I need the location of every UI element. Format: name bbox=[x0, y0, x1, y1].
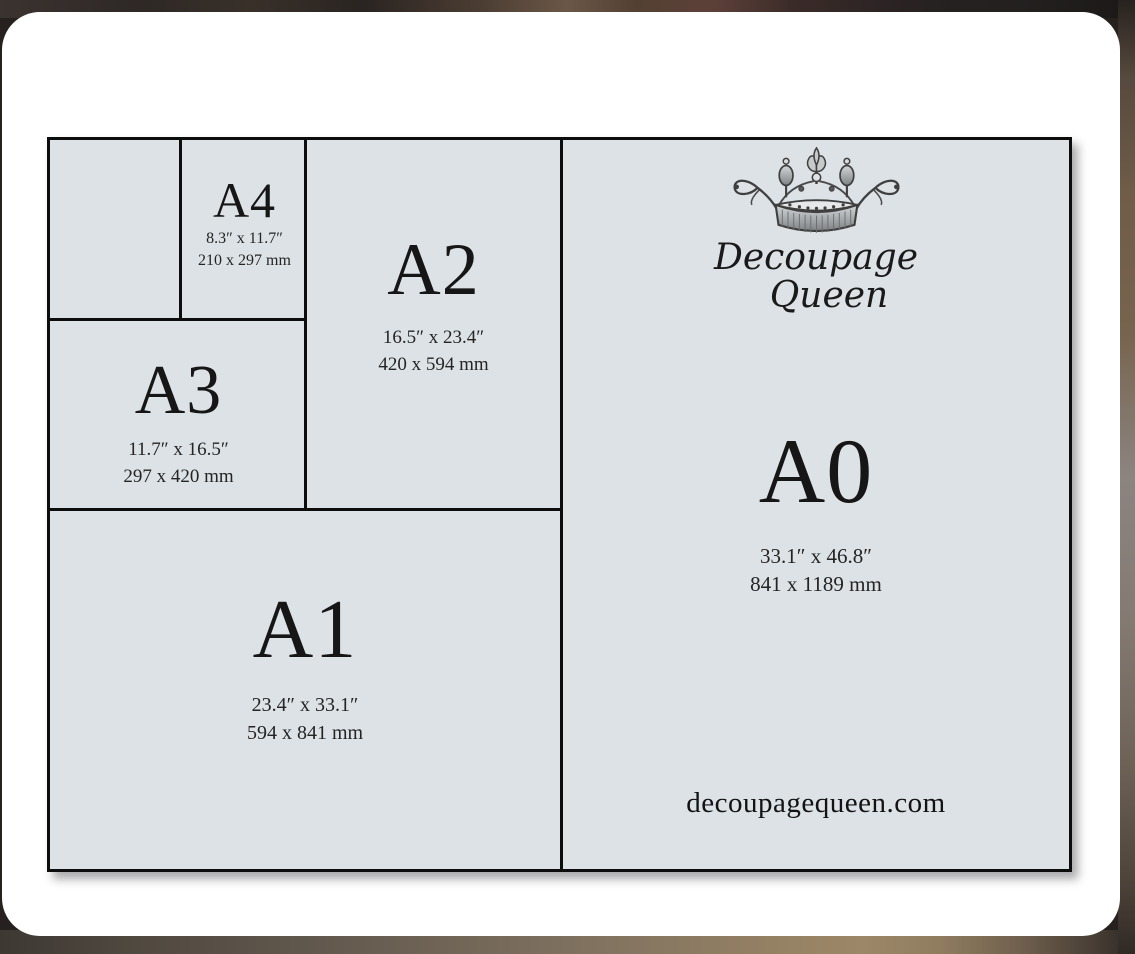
a2-label: A2 bbox=[307, 233, 560, 307]
a1-label: A1 bbox=[50, 588, 560, 672]
a0-dimensions: 33.1″ x 46.8″ 841 x 1189 mm bbox=[563, 542, 1069, 599]
divider-a4-row-bottom bbox=[50, 318, 304, 321]
a3-mm: 297 x 420 mm bbox=[50, 464, 307, 491]
a4-label: A4 bbox=[182, 175, 307, 225]
website-text: decoupagequeen.com bbox=[563, 787, 1069, 820]
white-card: A4 8.3″ x 11.7″ 210 x 297 mm A2 16.5″ x … bbox=[2, 12, 1120, 936]
brand-line1: Decoupage bbox=[563, 239, 1069, 277]
a0-inches: 33.1″ x 46.8″ bbox=[563, 542, 1069, 570]
a0-label: A0 bbox=[563, 425, 1069, 517]
crown-icon bbox=[719, 146, 914, 241]
a4-inches: 8.3″ x 11.7″ bbox=[182, 228, 307, 250]
a3-inches: 11.7″ x 16.5″ bbox=[50, 437, 307, 464]
a2-dimensions: 16.5″ x 23.4″ 420 x 594 mm bbox=[307, 325, 560, 378]
a3-label: A3 bbox=[50, 356, 307, 426]
brand-line2: Queen bbox=[563, 277, 1069, 315]
a1-mm: 594 x 841 mm bbox=[50, 719, 560, 747]
a2-inches: 16.5″ x 23.4″ bbox=[307, 325, 560, 352]
a0-mm: 841 x 1189 mm bbox=[563, 570, 1069, 598]
panel-a0: Decoupage Queen A0 33.1″ x 46.8″ 841 x 1… bbox=[563, 140, 1069, 869]
a2-mm: 420 x 594 mm bbox=[307, 352, 560, 379]
paper-size-diagram: A4 8.3″ x 11.7″ 210 x 297 mm A2 16.5″ x … bbox=[47, 137, 1072, 872]
a4-dimensions: 8.3″ x 11.7″ 210 x 297 mm bbox=[182, 228, 307, 271]
panel-a4: A4 8.3″ x 11.7″ 210 x 297 mm bbox=[182, 175, 307, 271]
a1-inches: 23.4″ x 33.1″ bbox=[50, 691, 560, 719]
backdrop-right-band bbox=[1118, 0, 1135, 954]
panel-a1: A1 23.4″ x 33.1″ 594 x 841 mm bbox=[50, 588, 560, 747]
diagram-inner: A4 8.3″ x 11.7″ 210 x 297 mm A2 16.5″ x … bbox=[50, 140, 1069, 869]
a3-dimensions: 11.7″ x 16.5″ 297 x 420 mm bbox=[50, 437, 307, 490]
panel-a3: A3 11.7″ x 16.5″ 297 x 420 mm bbox=[50, 356, 307, 490]
page: A4 8.3″ x 11.7″ 210 x 297 mm A2 16.5″ x … bbox=[0, 0, 1135, 954]
a1-dimensions: 23.4″ x 33.1″ 594 x 841 mm bbox=[50, 691, 560, 747]
a4-mm: 210 x 297 mm bbox=[182, 250, 307, 272]
panel-a2: A2 16.5″ x 23.4″ 420 x 594 mm bbox=[307, 233, 560, 378]
brand-wordmark: Decoupage Queen bbox=[563, 239, 1069, 315]
